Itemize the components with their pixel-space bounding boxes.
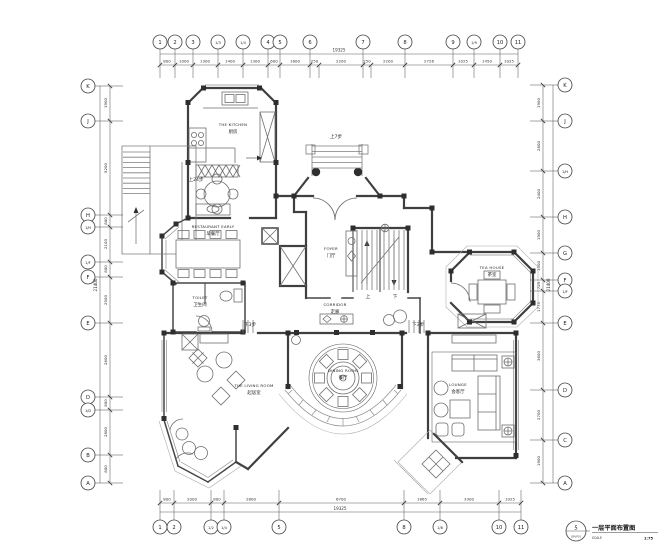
svg-text:K: K <box>563 83 567 89</box>
grid-bubble-bottom-1/2: 1/2 <box>204 503 218 534</box>
toilet-bowl <box>220 291 232 301</box>
svg-text:上24步: 上24步 <box>188 176 203 183</box>
svg-text:C: C <box>563 438 567 444</box>
svg-text:下: 下 <box>393 294 398 300</box>
annotation-stair-down: 下 <box>393 294 398 300</box>
grid-bubble-bottom-1: 1 <box>153 503 167 534</box>
svg-text:800: 800 <box>213 497 221 502</box>
svg-text:餐厅: 餐厅 <box>339 374 348 381</box>
svg-text:TEA HOUSE: TEA HOUSE <box>479 265 505 270</box>
svg-text:厨房: 厨房 <box>229 128 238 135</box>
svg-text:600: 600 <box>270 59 278 64</box>
scale-label: SCALE <box>592 536 602 540</box>
room-label-tea-house: TEA HOUSE茶室 <box>479 265 505 278</box>
annotation-stair-up: 上 <box>366 293 371 300</box>
annotation-ext-stair-steps: 上24步 <box>188 176 203 183</box>
svg-text:250: 250 <box>311 59 319 64</box>
svg-text:E: E <box>563 321 566 327</box>
grid-bubble-bottom-10: 10 <box>492 503 506 534</box>
living-table <box>197 366 213 382</box>
svg-text:1025: 1025 <box>504 59 514 64</box>
svg-text:800: 800 <box>103 265 108 273</box>
svg-text:F: F <box>564 278 567 284</box>
svg-text:1025: 1025 <box>505 497 515 502</box>
svg-text:1600: 1600 <box>290 59 300 64</box>
svg-text:1900: 1900 <box>536 98 541 108</box>
svg-text:TOILET: TOILET <box>191 295 207 300</box>
svg-text:起居室: 起居室 <box>247 389 261 396</box>
svg-text:茶室: 茶室 <box>488 271 497 278</box>
svg-text:1450: 1450 <box>482 59 492 64</box>
svg-text:D: D <box>563 388 567 394</box>
svg-text:19325: 19325 <box>332 48 345 53</box>
svg-text:走廊: 走廊 <box>331 308 340 315</box>
svg-text:卫生间: 卫生间 <box>193 301 206 308</box>
door-swing-left <box>313 198 335 220</box>
breakfast-table <box>204 181 230 207</box>
grid-bubble-left-A: A <box>81 476 110 490</box>
svg-text:2400: 2400 <box>536 189 541 199</box>
entry-column-left <box>312 168 320 176</box>
svg-text:2800: 2800 <box>103 427 108 437</box>
svg-text:E: E <box>86 321 89 327</box>
svg-text:11: 11 <box>518 525 525 531</box>
lounge-console <box>452 335 496 343</box>
dims-bottom: 80020008002800670018653300102519325 <box>158 490 523 512</box>
svg-text:1: 1 <box>158 40 161 46</box>
room-label-foyer: FOYER门厅 <box>324 246 338 259</box>
grid-bubble-left-J: J <box>81 114 110 128</box>
svg-text:1/2: 1/2 <box>208 526 214 530</box>
svg-text:3600: 3600 <box>536 351 541 361</box>
svg-text:3300: 3300 <box>464 497 474 502</box>
svg-text:3: 3 <box>191 40 194 46</box>
tea-door-swing <box>451 283 470 302</box>
grid-bubbles: 1231/31/44567891/91011121/21/4581/81011K… <box>81 35 572 534</box>
drawing-code: QP-JP01 <box>571 535 582 539</box>
svg-text:F: F <box>87 275 90 281</box>
grid-bubble-top-1/4: 1/4 <box>236 35 250 65</box>
svg-text:5200: 5200 <box>103 163 108 173</box>
dims-top: 8001000130014001300600160025022002502200… <box>158 48 520 79</box>
room-label-living-room: THE LIVING ROOM起居室 <box>233 383 273 396</box>
grid-bubble-bottom-1/4: 1/4 <box>217 503 231 534</box>
svg-text:CORRIDOR: CORRIDOR <box>323 302 346 307</box>
svg-text:1/F: 1/F <box>85 261 90 265</box>
svg-text:21400: 21400 <box>546 278 551 291</box>
room-label-kitchen: THE KITCHEN厨房 <box>218 122 248 135</box>
svg-text:1/3: 1/3 <box>215 41 221 45</box>
floor-plan-page: 1231/31/44567891/91011121/21/4581/81011K… <box>0 0 660 550</box>
entry-column-right <box>354 168 362 176</box>
generated-geometry <box>123 86 536 459</box>
lounge-chair <box>436 423 448 436</box>
svg-text:19325: 19325 <box>333 506 346 511</box>
corridor-console <box>320 314 353 324</box>
svg-text:会客厅: 会客厅 <box>451 388 465 395</box>
living-chair <box>212 387 230 405</box>
svg-text:1775: 1775 <box>536 302 541 312</box>
svg-text:9: 9 <box>451 40 454 46</box>
svg-text:RESTAURANT EARLY: RESTAURANT EARLY <box>192 224 235 229</box>
svg-text:2: 2 <box>173 40 176 46</box>
annotation-entry-steps: 上7步 <box>330 133 343 140</box>
svg-text:2800: 2800 <box>536 141 541 151</box>
svg-text:2200: 2200 <box>336 59 346 64</box>
grid-bubble-bottom-1/8: 1/8 <box>433 503 447 534</box>
svg-text:1300: 1300 <box>250 59 260 64</box>
svg-text:2200: 2200 <box>383 59 393 64</box>
room-label-lounge: LOUNGE会客厅 <box>449 382 467 395</box>
tea-table <box>478 280 506 304</box>
grid-bubble-right-K: K <box>543 78 572 92</box>
svg-text:1865: 1865 <box>417 497 427 502</box>
living-table <box>216 352 232 368</box>
svg-text:800: 800 <box>103 465 108 473</box>
svg-text:10: 10 <box>496 525 503 531</box>
svg-text:1/9: 1/9 <box>471 41 477 45</box>
grid-bubble-bottom-5: 5 <box>272 503 286 534</box>
grid-bubble-right-E: E <box>543 316 572 330</box>
grid-bubble-right-1/H: 1/H <box>543 164 572 178</box>
svg-text:1/D: 1/D <box>85 409 91 413</box>
svg-text:2800: 2800 <box>246 497 256 502</box>
svg-text:2600: 2600 <box>103 355 108 365</box>
svg-text:K: K <box>86 84 90 90</box>
svg-text:上: 上 <box>366 293 371 300</box>
svg-text:LOUNGE: LOUNGE <box>449 382 467 387</box>
svg-text:2: 2 <box>172 525 175 531</box>
svg-text:5: 5 <box>277 525 280 531</box>
toilet-tank <box>234 289 242 302</box>
plant <box>394 310 407 323</box>
restaurant-table <box>176 240 240 268</box>
svg-text:800: 800 <box>103 399 108 407</box>
svg-text:1900: 1900 <box>103 98 108 108</box>
svg-text:门厅: 门厅 <box>327 252 336 259</box>
room-label-corridor: CORRIDOR走廊 <box>323 302 346 315</box>
svg-text:2100: 2100 <box>103 239 108 249</box>
svg-text:10: 10 <box>497 40 504 46</box>
grid-bubble-left-E: E <box>81 316 110 330</box>
svg-text:1500: 1500 <box>536 261 541 271</box>
plant <box>384 315 395 326</box>
svg-text:H: H <box>563 215 567 221</box>
svg-text:1900: 1900 <box>536 230 541 240</box>
grid-bubble-top-1/3: 1/3 <box>211 35 225 65</box>
svg-text:6700: 6700 <box>336 497 346 502</box>
svg-text:8: 8 <box>402 525 405 531</box>
grid-bubble-right-C: C <box>543 433 572 447</box>
grid-bubble-bottom-11: 11 <box>514 503 528 534</box>
svg-text:1025: 1025 <box>458 59 468 64</box>
svg-text:2500: 2500 <box>103 295 108 305</box>
grid-bubble-right-H: H <box>543 210 572 224</box>
svg-text:1: 1 <box>158 525 161 531</box>
lounge-chair <box>452 423 464 436</box>
svg-text:下3步: 下3步 <box>244 322 257 328</box>
drawing-number: 5 <box>574 526 577 532</box>
entry-steps <box>306 144 368 220</box>
grid-bubble-left-K: K <box>81 79 110 93</box>
svg-text:2726: 2726 <box>424 59 434 64</box>
sofa <box>478 376 500 430</box>
svg-text:6: 6 <box>308 40 311 46</box>
svg-text:11: 11 <box>515 40 522 46</box>
grid-bubble-bottom-2: 2 <box>167 503 181 534</box>
grid-bubble-right-D: D <box>543 383 572 397</box>
svg-text:1400: 1400 <box>225 59 235 64</box>
grid-bubble-right-A: A <box>543 476 572 490</box>
svg-text:G: G <box>563 251 567 257</box>
svg-text:800: 800 <box>163 497 171 502</box>
svg-text:1/H: 1/H <box>562 170 568 174</box>
grid-bubble-right-G: G <box>543 246 572 260</box>
svg-text:1900: 1900 <box>536 456 541 466</box>
svg-text:1/8: 1/8 <box>437 526 443 530</box>
svg-text:FOYER: FOYER <box>324 246 338 251</box>
svg-text:1/F: 1/F <box>562 290 567 294</box>
svg-text:早餐厅: 早餐厅 <box>206 230 220 237</box>
coffee-table <box>450 400 470 418</box>
round-table <box>434 381 448 395</box>
svg-text:H: H <box>86 213 90 219</box>
kitchen-stove <box>189 128 206 162</box>
svg-text:5: 5 <box>278 40 281 46</box>
round-table <box>434 403 448 417</box>
svg-text:8: 8 <box>403 40 406 46</box>
svg-text:21400: 21400 <box>93 278 98 291</box>
svg-text:1/4: 1/4 <box>240 41 246 45</box>
svg-text:725: 725 <box>536 281 541 289</box>
grid-bubble-right-J: J <box>543 114 572 128</box>
grid-bubble-top-1/9: 1/9 <box>467 35 481 65</box>
svg-text:上7步: 上7步 <box>330 133 343 140</box>
svg-text:B: B <box>86 453 90 459</box>
svg-text:DINING ROOM: DINING ROOM <box>328 368 358 373</box>
svg-text:1/H: 1/H <box>85 226 91 230</box>
scale-value: 1:75 <box>644 537 653 541</box>
grid-bubble-top-8: 8 <box>398 35 412 65</box>
title-block: 5 QP-JP01 一层平面布置图 SCALE 1:75 <box>566 521 658 541</box>
svg-text:2700: 2700 <box>536 410 541 420</box>
svg-text:THE KITCHEN: THE KITCHEN <box>218 122 248 127</box>
grid-bubble-bottom-8: 8 <box>397 503 411 534</box>
floor-plan-drawing: 1231/31/44567891/91011121/21/4581/81011K… <box>0 0 660 550</box>
dims-left: 1900520080021008002500260080028008002140… <box>93 84 123 485</box>
svg-text:THE LIVING ROOM: THE LIVING ROOM <box>233 383 273 388</box>
drawing-title: 一层平面布置图 <box>592 524 635 532</box>
svg-text:2000: 2000 <box>187 497 197 502</box>
svg-text:D: D <box>86 395 90 401</box>
svg-text:250: 250 <box>363 59 371 64</box>
living-cabinet <box>200 334 228 343</box>
svg-text:1300: 1300 <box>200 59 210 64</box>
svg-text:7: 7 <box>361 40 364 46</box>
annotation-steps-down-left: 下3步 <box>244 322 257 328</box>
svg-text:A: A <box>563 481 567 487</box>
svg-text:1/4: 1/4 <box>221 526 227 530</box>
svg-text:800: 800 <box>163 59 171 64</box>
kitchen-sink <box>222 92 248 105</box>
svg-text:1000: 1000 <box>179 59 189 64</box>
svg-text:A: A <box>86 481 90 487</box>
svg-text:800: 800 <box>103 217 108 225</box>
loveseat <box>452 355 497 371</box>
door-swing-right <box>335 198 357 220</box>
grid-bubble-left-B: B <box>81 448 110 462</box>
